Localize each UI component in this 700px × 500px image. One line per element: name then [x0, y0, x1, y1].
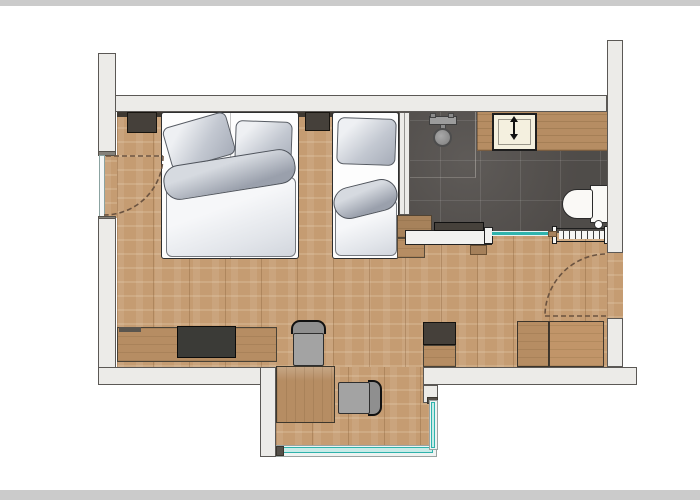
washbasin [492, 113, 537, 151]
glass-partition-connector [548, 231, 557, 237]
wardrobe-unit-1 [517, 321, 549, 367]
wall-bay-left [260, 367, 276, 457]
single-bed [332, 112, 399, 259]
wall-top [115, 95, 607, 112]
faucet-icon [508, 116, 520, 140]
wall-right-upper [607, 40, 623, 253]
left-door-leaf [99, 155, 105, 218]
bay-window-post [276, 446, 284, 456]
shower-knob [448, 113, 454, 118]
bench [405, 230, 492, 245]
wall-right-lower [607, 318, 623, 367]
bench-leg [470, 245, 487, 255]
chair-top [293, 333, 324, 366]
nightstand-center [305, 112, 330, 131]
left-door-threshold [104, 155, 117, 218]
bay-window-right-glass [431, 402, 435, 448]
shower-knob [430, 113, 436, 118]
nightstand-left [127, 112, 157, 133]
toilet-bowl [562, 189, 593, 219]
frame-strip-top [0, 0, 700, 6]
bathroom-glass-partition [492, 231, 554, 236]
desk-table [276, 366, 335, 423]
bathroom-partition-wall [399, 112, 410, 215]
frame-strip-bottom [0, 490, 700, 500]
double-bed [161, 112, 299, 259]
chair-backrest [368, 380, 382, 416]
floor-plan-canvas [0, 0, 700, 500]
wall-left-lower [98, 218, 116, 385]
chair-backrest [291, 320, 326, 334]
towel-radiator [556, 228, 607, 242]
minibar-cabinet-top [423, 322, 456, 345]
entry-door-threshold [607, 253, 623, 318]
wall-bottom-right [423, 367, 637, 385]
bay-window-bottom-glass [280, 447, 433, 453]
shower-head [433, 128, 452, 147]
minibar-cabinet-base [423, 345, 456, 367]
pillow [336, 117, 397, 166]
sideboard-item [119, 327, 141, 332]
wall-left-upper [98, 53, 116, 155]
wall-bottom-left [98, 367, 276, 385]
wardrobe-unit-2 [549, 321, 604, 367]
tv [177, 326, 236, 358]
bench-cushion [434, 222, 484, 231]
chair-right [338, 382, 370, 414]
